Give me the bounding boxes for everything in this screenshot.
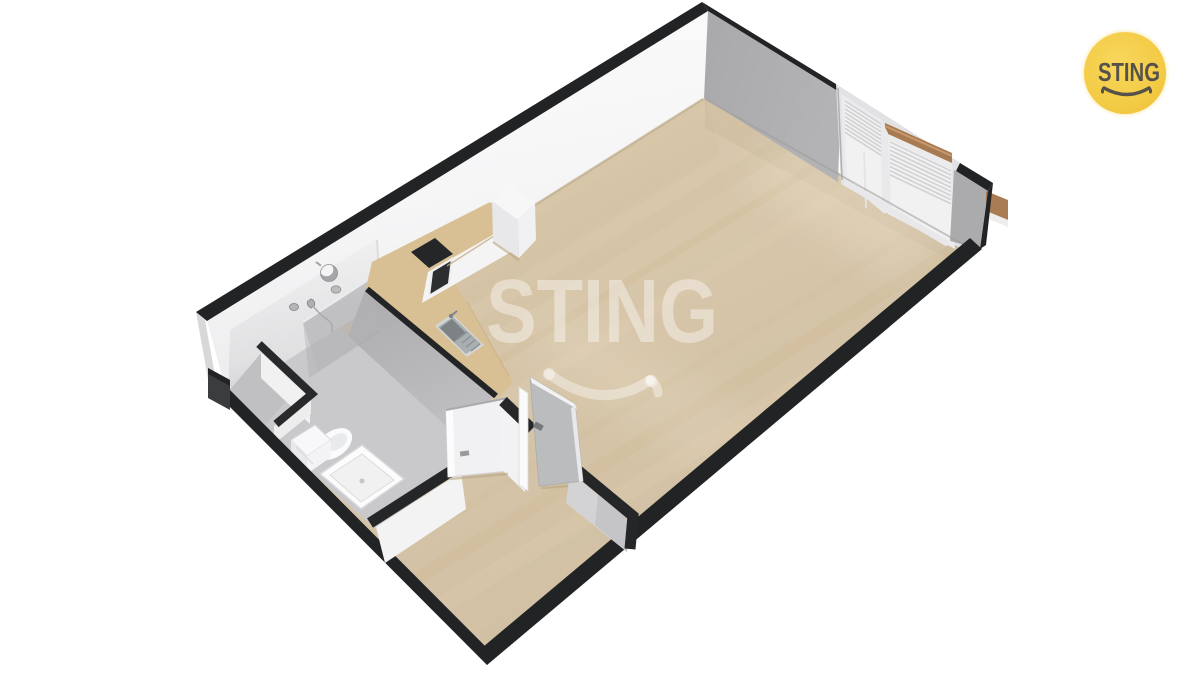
svg-text:STING: STING [1098,57,1160,87]
svg-text:STING: STING [486,262,718,362]
